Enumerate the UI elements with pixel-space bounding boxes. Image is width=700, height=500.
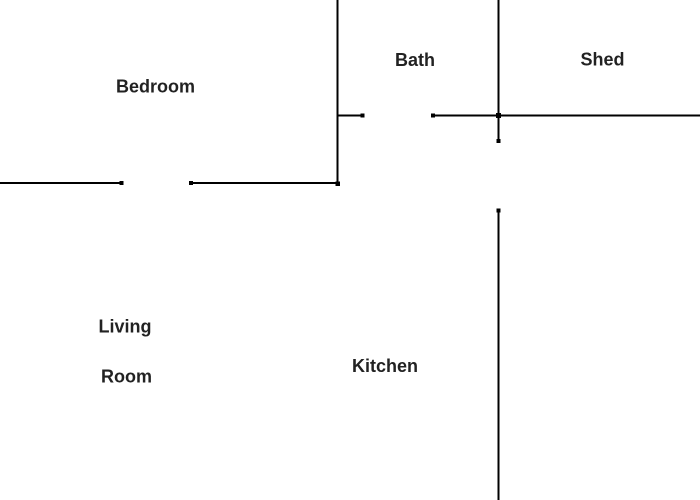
svg-text:Bath: Bath xyxy=(395,50,435,70)
svg-text:Room: Room xyxy=(101,367,152,387)
svg-text:Shed: Shed xyxy=(580,50,624,70)
svg-text:Bedroom: Bedroom xyxy=(116,77,195,97)
svg-text:Kitchen: Kitchen xyxy=(352,356,418,376)
svg-text:Living: Living xyxy=(99,317,152,337)
